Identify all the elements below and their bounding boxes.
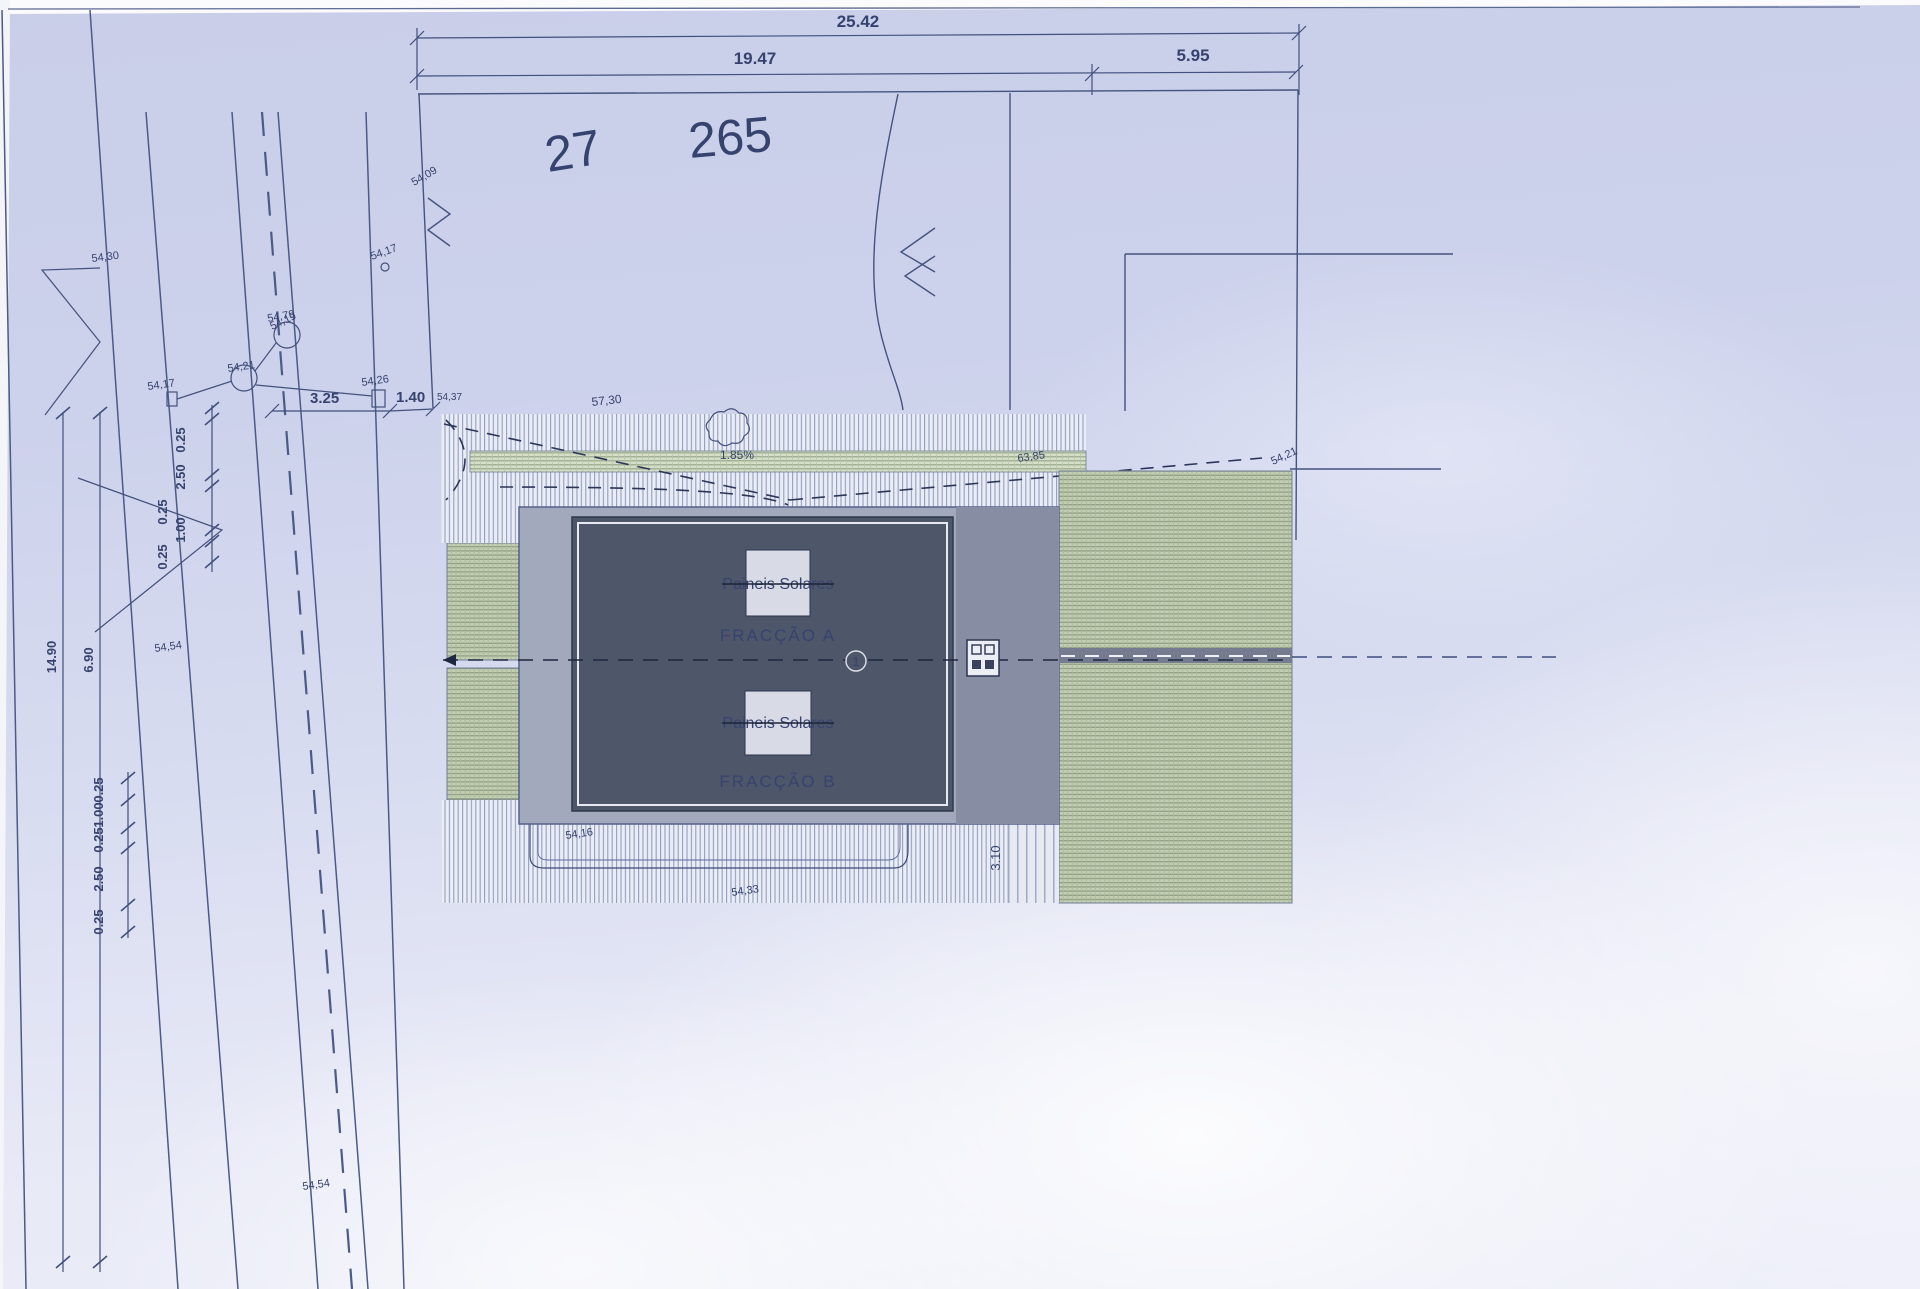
- svg-text:5.95: 5.95: [1176, 46, 1209, 65]
- svg-text:54,30: 54,30: [91, 250, 120, 265]
- svg-text:2.50: 2.50: [173, 464, 188, 489]
- svg-text:2.50: 2.50: [91, 866, 106, 891]
- svg-text:1.85%: 1.85%: [720, 448, 754, 462]
- svg-text:54,21: 54,21: [1269, 445, 1299, 468]
- svg-text:0.25: 0.25: [91, 827, 106, 852]
- svg-text:0.25: 0.25: [173, 427, 188, 452]
- svg-text:14.90: 14.90: [44, 641, 59, 674]
- svg-text:0.25: 0.25: [155, 499, 170, 524]
- svg-text:19.47: 19.47: [734, 49, 777, 68]
- svg-text:6.90: 6.90: [81, 647, 96, 672]
- svg-text:1: 1: [852, 654, 859, 669]
- svg-text:54,26: 54,26: [361, 373, 390, 389]
- svg-text:3.10: 3.10: [988, 845, 1003, 870]
- svg-text:1.00: 1.00: [91, 802, 106, 827]
- svg-text:FRACÇÃO B: FRACÇÃO B: [719, 772, 836, 791]
- svg-text:1.40: 1.40: [396, 389, 425, 406]
- svg-text:54,37: 54,37: [437, 392, 462, 403]
- svg-text:54,09: 54,09: [410, 164, 440, 188]
- svg-text:FRACÇÃO A: FRACÇÃO A: [720, 626, 836, 645]
- svg-text:54,54: 54,54: [154, 639, 183, 655]
- svg-text:265: 265: [686, 106, 774, 169]
- svg-text:57,30: 57,30: [591, 392, 623, 409]
- svg-text:27: 27: [541, 119, 605, 183]
- svg-text:0.25: 0.25: [155, 544, 170, 569]
- svg-text:25.42: 25.42: [837, 12, 880, 31]
- svg-text:54,54: 54,54: [302, 1177, 331, 1193]
- svg-text:1.00: 1.00: [173, 517, 188, 542]
- svg-text:0.25: 0.25: [91, 777, 106, 802]
- svg-text:54,17: 54,17: [147, 377, 176, 393]
- svg-text:54,17: 54,17: [369, 242, 399, 263]
- svg-text:0.25: 0.25: [91, 909, 106, 934]
